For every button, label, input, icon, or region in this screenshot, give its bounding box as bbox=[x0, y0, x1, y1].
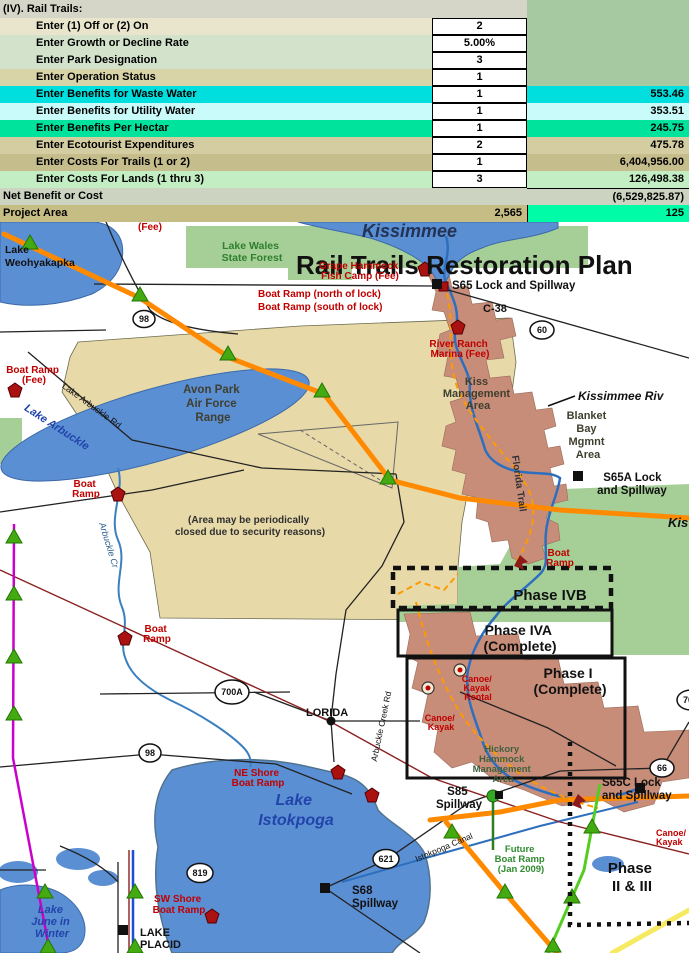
value-cell bbox=[527, 69, 689, 86]
lake-wales-label: Lake Wales State Forest bbox=[222, 240, 283, 264]
sheet-row-ecotourist: Enter Ecotourist Expenditures 2 475.78 bbox=[0, 137, 689, 154]
input-cell-operation-status[interactable]: 1 bbox=[432, 69, 527, 86]
project-area-value: 125 bbox=[527, 205, 689, 224]
row-label: Enter Operation Status bbox=[0, 69, 432, 86]
rail-trails-worksheet: (IV). Rail Trails: Enter (1) Off or (2) … bbox=[0, 0, 689, 222]
input-cell-waste-water[interactable]: 1 bbox=[432, 86, 527, 103]
value-cell: 6,404,956.00 bbox=[527, 154, 689, 171]
value-cell: 126,498.38 bbox=[527, 171, 689, 188]
route-98-north: 98 bbox=[139, 314, 149, 324]
section-header-row: (IV). Rail Trails: bbox=[0, 0, 689, 18]
sheet-row-waste-water: Enter Benefits for Waste Water 1 553.46 bbox=[0, 86, 689, 103]
c38-label: C-38 bbox=[483, 303, 507, 315]
phase-ivb-label: Phase IVB bbox=[513, 587, 587, 604]
phase-2-3-label: Phase II & III bbox=[608, 860, 656, 895]
canoe-rental-label: Canoe/ Kayak Rental bbox=[462, 674, 495, 702]
sheet-row-costs-lands: Enter Costs For Lands (1 thru 3) 3 126,4… bbox=[0, 171, 689, 188]
route-700a: 700A bbox=[221, 687, 243, 697]
range-note-label: (Area may be periodically closed due to … bbox=[175, 515, 325, 538]
value-cell bbox=[527, 52, 689, 69]
route-819: 819 bbox=[192, 868, 207, 878]
sheet-row-off-on: Enter (1) Off or (2) On 2 bbox=[0, 18, 689, 35]
s65c-lock-label: S65C Lock and Spillway bbox=[602, 777, 672, 802]
lake-kissimmee-label: Kissimmee bbox=[362, 222, 457, 241]
lake-placid-town-icon bbox=[118, 925, 128, 935]
input-cell-ecotourist[interactable]: 2 bbox=[432, 137, 527, 154]
phase-i-label: Phase I (Complete) bbox=[533, 665, 606, 697]
sw-shore-label: SW Shore Boat Ramp bbox=[153, 894, 206, 916]
lorida-label: LORIDA bbox=[306, 707, 348, 719]
section-title: (IV). Rail Trails: bbox=[0, 0, 527, 18]
boat-ramp-ivb-label: Boat Ramp bbox=[546, 548, 574, 569]
route-70: 70 bbox=[683, 695, 689, 705]
value-cell bbox=[527, 18, 689, 35]
row-label: Enter Growth or Decline Rate bbox=[0, 35, 432, 52]
grape-hammock-label: Grape Hammock Fish Camp (Fee) bbox=[319, 261, 401, 282]
s65a-lock-label: S65A Lock and Spillway bbox=[597, 472, 667, 497]
row-label: Enter Benefits for Utility Water bbox=[0, 103, 432, 120]
value-cell: 245.75 bbox=[527, 120, 689, 137]
input-cell-utility-water[interactable]: 1 bbox=[432, 103, 527, 120]
river-ranch-label: River Ranch Marina (Fee) bbox=[429, 339, 490, 360]
row-label: Enter Costs For Lands (1 thru 3) bbox=[0, 171, 432, 188]
section-header-fill bbox=[527, 0, 689, 18]
row-label: Enter Benefits for Waste Water bbox=[0, 86, 432, 103]
sheet-row-operation-status: Enter Operation Status 1 bbox=[0, 69, 689, 86]
value-cell: 353.51 bbox=[527, 103, 689, 120]
sheet-row-park-designation: Enter Park Designation 3 bbox=[0, 52, 689, 69]
boat-ramp-mid-label: Boat Ramp bbox=[143, 624, 171, 645]
row-label: Enter Costs For Trails (1 or 2) bbox=[0, 154, 432, 171]
row-label: Enter Benefits Per Hectar bbox=[0, 120, 432, 137]
boat-ramp-north-label: Boat Ramp (north of lock) bbox=[258, 289, 381, 300]
phase-iva-label: Phase IVA (Complete) bbox=[483, 622, 556, 654]
value-cell bbox=[527, 35, 689, 52]
input-cell-growth-rate[interactable]: 5.00% bbox=[432, 35, 527, 52]
route-60: 60 bbox=[537, 325, 547, 335]
s65-lock-label: S65 Lock and Spillway bbox=[452, 280, 576, 292]
route-621: 621 bbox=[378, 854, 393, 864]
input-cell-benefits-hectar[interactable]: 1 bbox=[432, 120, 527, 137]
fee-top-label: (Fee) bbox=[138, 222, 162, 233]
value-cell: 475.78 bbox=[527, 137, 689, 154]
input-cell-costs-lands[interactable]: 3 bbox=[432, 171, 527, 188]
route-98-south: 98 bbox=[145, 748, 155, 758]
rail-trails-map: 98 60 700A 98 66 621 819 70 Rail Trails … bbox=[0, 222, 689, 953]
ne-shore-label: NE Shore Boat Ramp bbox=[232, 768, 285, 789]
sheet-row-net-benefit: Net Benefit or Cost (6,529,825.87) bbox=[0, 188, 689, 205]
kis-edge-label: Kis bbox=[668, 515, 688, 530]
kissimmee-riv-label: Kissimmee Riv bbox=[578, 389, 665, 403]
boat-ramp-creek-label: Boat Ramp bbox=[72, 479, 100, 500]
route-66: 66 bbox=[657, 763, 667, 773]
small-lake-1 bbox=[56, 848, 100, 870]
sheet-row-benefits-hectar: Enter Benefits Per Hectar 1 245.75 bbox=[0, 120, 689, 137]
value-cell: 553.46 bbox=[527, 86, 689, 103]
boat-ramp-south-label: Boat Ramp (south of lock) bbox=[258, 302, 382, 313]
canoe-kayak-label: Canoe/ Kayak bbox=[425, 713, 458, 732]
row-label: Enter (1) Off or (2) On bbox=[0, 18, 432, 35]
input-cell-park-designation[interactable]: 3 bbox=[432, 52, 527, 69]
sheet-row-utility-water: Enter Benefits for Utility Water 1 353.5… bbox=[0, 103, 689, 120]
input-cell-off-on[interactable]: 2 bbox=[432, 18, 527, 35]
sheet-row-project-area: Project Area 2,565 125 bbox=[0, 205, 689, 222]
row-label: Enter Ecotourist Expenditures bbox=[0, 137, 432, 154]
sheet-row-growth-rate: Enter Growth or Decline Rate 5.00% bbox=[0, 35, 689, 52]
row-label: Enter Park Designation bbox=[0, 52, 432, 69]
input-cell-costs-trails[interactable]: 1 bbox=[432, 154, 527, 171]
sheet-row-costs-trails: Enter Costs For Trails (1 or 2) 1 6,404,… bbox=[0, 154, 689, 171]
